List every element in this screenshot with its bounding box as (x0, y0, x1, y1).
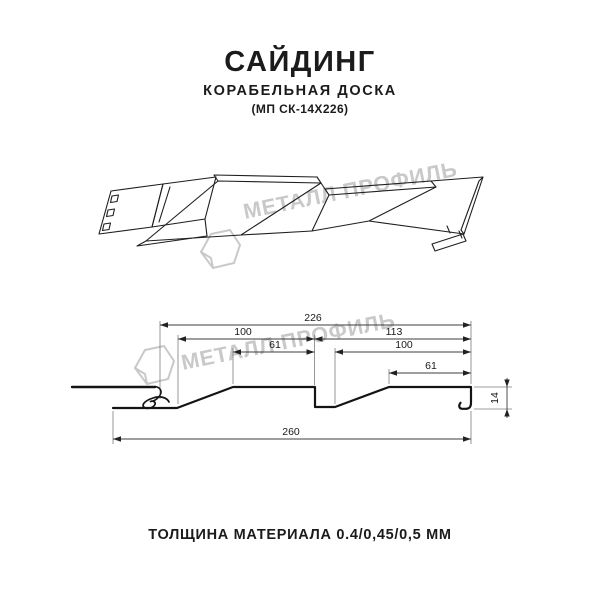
dimension-label-100-left: 100 (234, 326, 252, 338)
dimension-label-260: 260 (282, 426, 300, 438)
nail-hole (107, 209, 115, 217)
dimension-label-61-right: 61 (425, 360, 437, 372)
dimension-label-100-right: 100 (395, 339, 413, 351)
end-cap (431, 177, 483, 234)
dimension-label-113: 113 (386, 326, 403, 338)
mp-logo-icon (135, 346, 174, 384)
nail-hole (111, 195, 119, 203)
nail-hole (103, 223, 111, 231)
groove-edge (241, 231, 312, 235)
dimension-label-61-left: 61 (269, 339, 281, 351)
page-root: САЙДИНГ КОРАБЕЛЬНАЯ ДОСКА (МП СК-14Х226)… (0, 0, 600, 600)
profile-outline (113, 387, 471, 409)
dimension-label-14: 14 (489, 392, 501, 404)
drawing-canvas: МЕТАЛЛ ПРОФИЛЬ МЕТАЛЛ ПРОФИЛЬ (0, 0, 600, 600)
watermark-lower: МЕТАЛЛ ПРОФИЛЬ (135, 308, 397, 384)
watermark-upper: МЕТАЛЛ ПРОФИЛЬ (201, 157, 459, 268)
thickness-note: ТОЛЩИНА МАТЕРИАЛА 0.4/0,45/0,5 ММ (0, 528, 600, 543)
dimension-label-226: 226 (304, 312, 322, 324)
watermark-text: МЕТАЛЛ ПРОФИЛЬ (179, 308, 397, 375)
lock-hem (137, 219, 207, 246)
